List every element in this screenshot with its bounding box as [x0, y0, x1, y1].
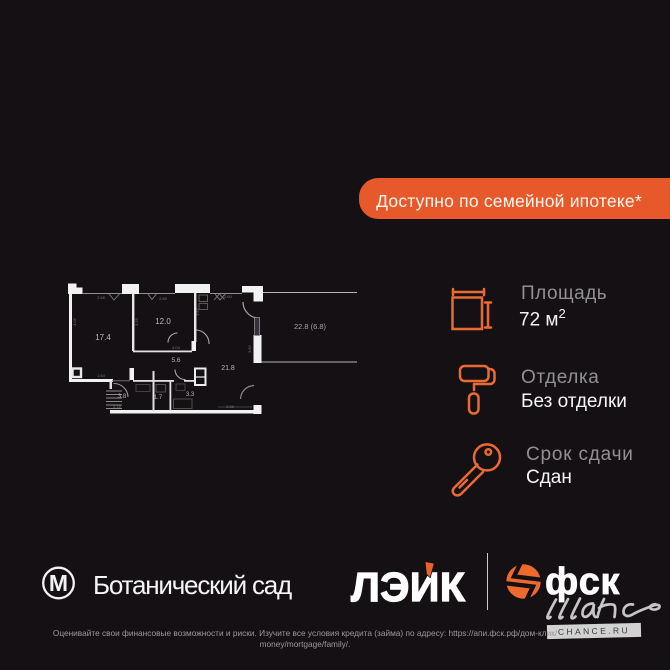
svg-text:М: М — [49, 570, 68, 596]
svg-text:22.8 (6.8): 22.8 (6.8) — [294, 322, 327, 331]
svg-text:1.64: 1.64 — [97, 373, 106, 378]
svg-text:17.4: 17.4 — [95, 333, 111, 342]
svg-text:21.8: 21.8 — [221, 365, 235, 372]
svg-text:4.05: 4.05 — [72, 317, 77, 326]
svg-text:3.3: 3.3 — [186, 392, 195, 398]
svg-text:1.57: 1.57 — [195, 307, 200, 316]
svg-text:2.60: 2.60 — [224, 294, 233, 299]
svg-text:12.0: 12.0 — [155, 317, 171, 326]
svg-text:5.6: 5.6 — [171, 357, 180, 364]
svg-text:2.16: 2.16 — [113, 404, 122, 409]
svg-text:3.62: 3.62 — [247, 344, 252, 353]
svg-text:3.8: 3.8 — [118, 394, 127, 400]
svg-text:2.89: 2.89 — [159, 296, 168, 301]
svg-text:1.7: 1.7 — [154, 395, 163, 401]
svg-text:4.04: 4.04 — [172, 345, 181, 350]
svg-text:3.29: 3.29 — [134, 317, 139, 326]
svg-text:2.68: 2.68 — [97, 295, 106, 300]
svg-text:2.85: 2.85 — [226, 404, 235, 409]
